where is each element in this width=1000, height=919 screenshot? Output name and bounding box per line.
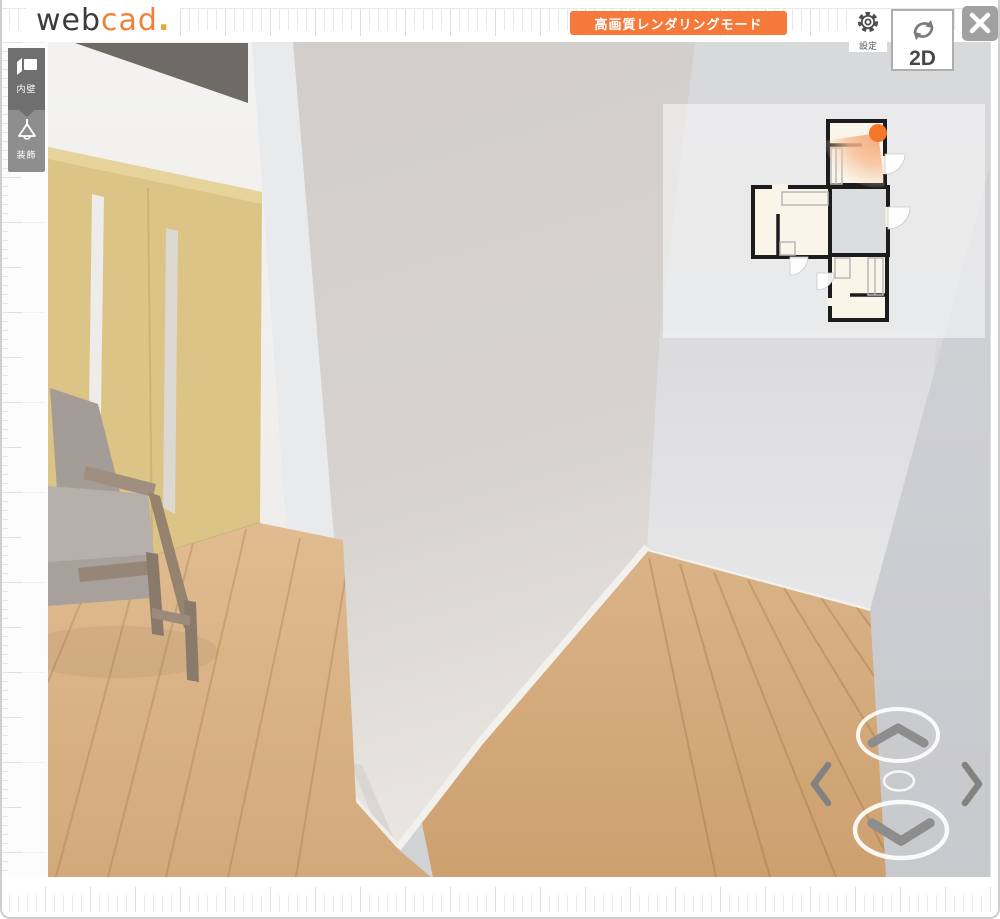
render-mode-button[interactable]: 高画質レンダリングモード: [570, 11, 787, 35]
viewport-3d[interactable]: [48, 42, 990, 877]
scene-3d: [48, 42, 990, 877]
wall-icon: [15, 63, 39, 80]
bottom-ruler: [0, 877, 1000, 919]
chair-seat-cushion: [48, 486, 154, 562]
minimap-room-bottom: [830, 255, 887, 320]
webcad-app: webcad. 高画質レンダリングモード 設定 2: [0, 0, 1000, 919]
minimap-room-left: [753, 187, 830, 257]
logo-cad: cad: [101, 3, 158, 38]
right-ruler: [990, 42, 1000, 877]
close-button[interactable]: [962, 6, 998, 41]
settings-label: 設定: [849, 39, 887, 52]
camera-position-marker[interactable]: [869, 124, 887, 142]
sidebar-item-label: 装飾: [8, 148, 45, 161]
view-toggle-label: 2D: [893, 50, 952, 68]
top-bar: webcad. 高画質レンダリングモード 設定 2: [0, 0, 1000, 42]
logo-dot: .: [158, 3, 170, 38]
gear-icon: [855, 22, 881, 39]
minimap-room-center: [830, 187, 888, 255]
close-icon: [962, 29, 998, 44]
chair-seat-front: [48, 554, 154, 606]
sidebar-item-label: 内壁: [8, 82, 45, 95]
sidebar-item-decoration[interactable]: 装飾: [8, 110, 45, 172]
tool-sidebar: 内壁 装飾: [8, 48, 45, 172]
minimap[interactable]: [663, 104, 985, 338]
pendant-lamp-icon: [15, 129, 39, 146]
logo-web: web: [36, 3, 101, 38]
app-logo: webcad.: [26, 1, 180, 41]
settings-button[interactable]: 設定: [849, 9, 887, 52]
view-toggle-2d-button[interactable]: 2D: [891, 9, 954, 71]
sidebar-item-inner-wall[interactable]: 内壁: [8, 48, 45, 110]
